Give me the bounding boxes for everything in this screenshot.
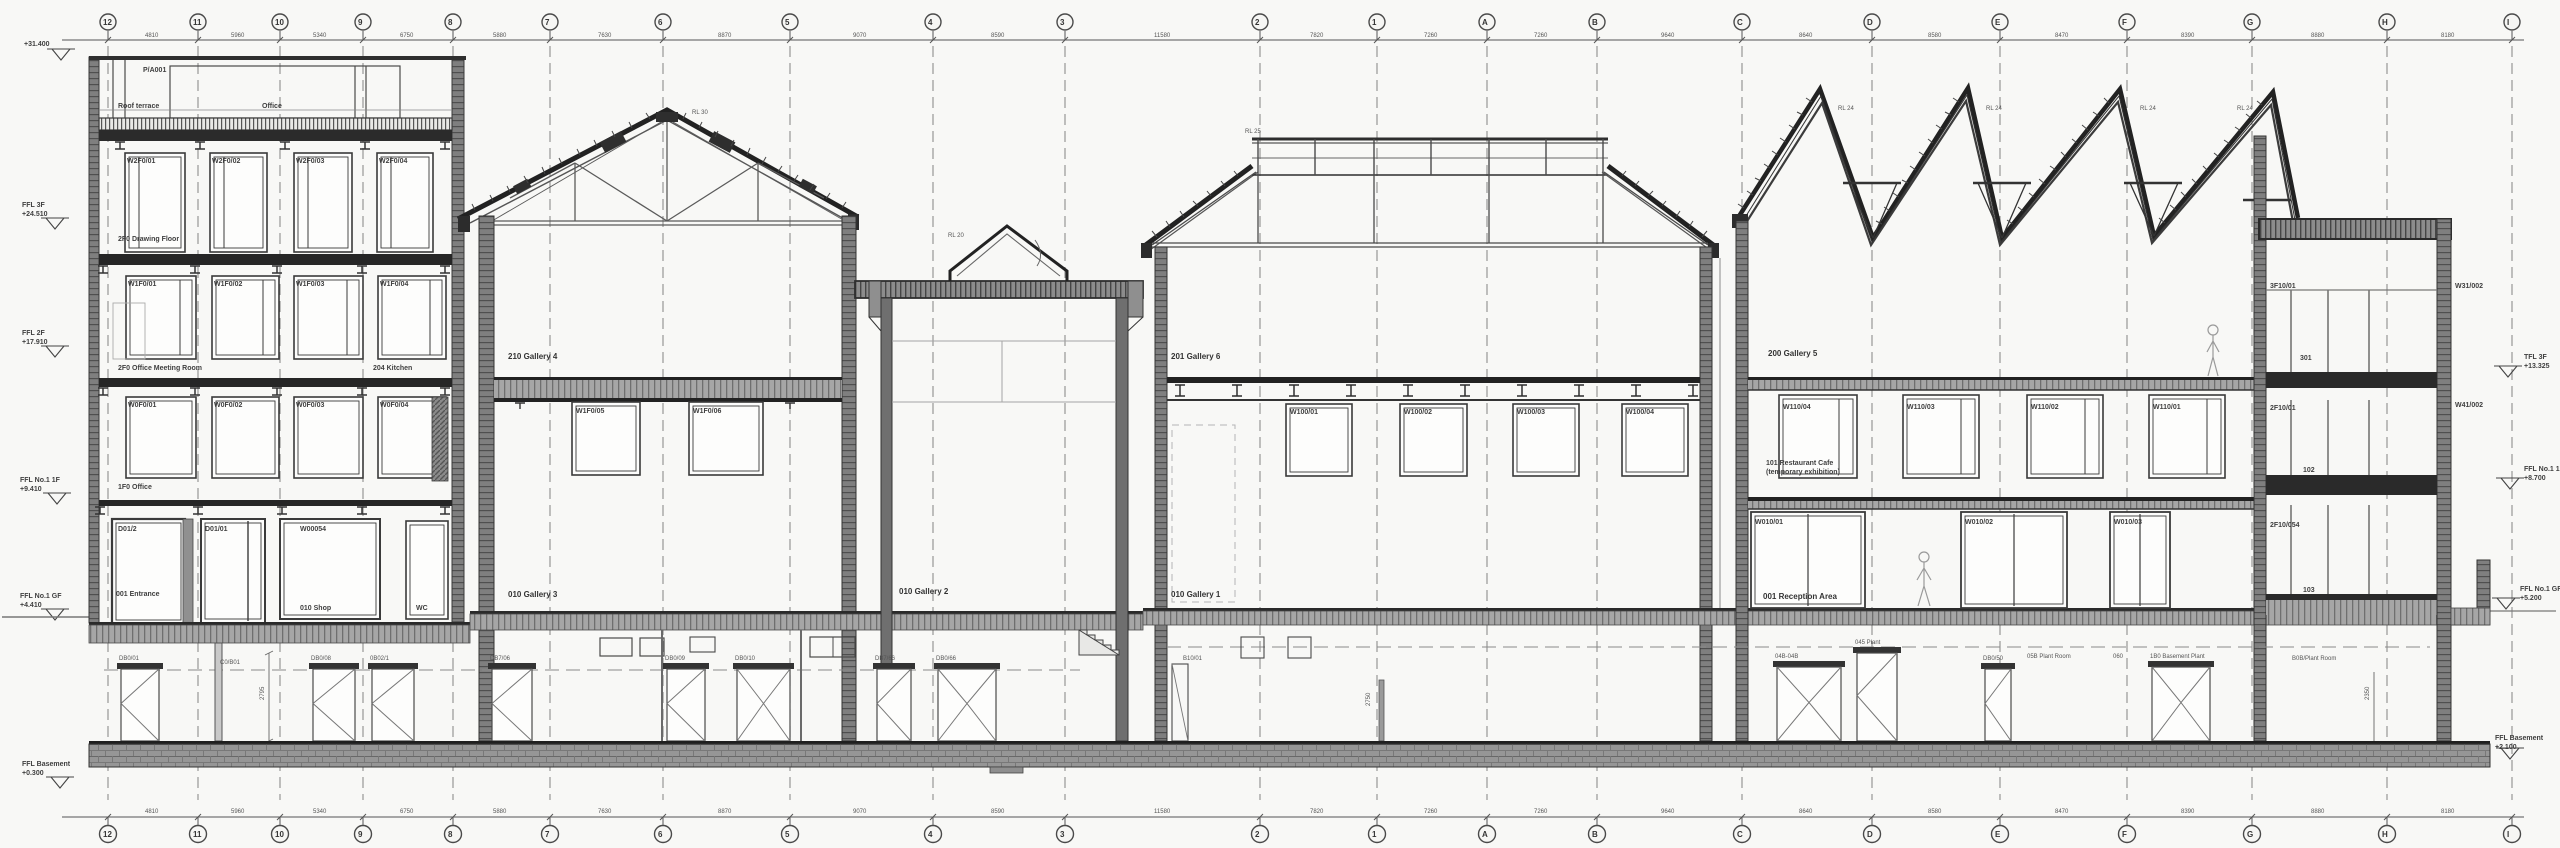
svg-text:2F10/01: 2F10/01 (2270, 405, 2296, 412)
svg-text:6750: 6750 (400, 809, 414, 815)
svg-text:FFL No.1 GF: FFL No.1 GF (2520, 586, 2560, 593)
svg-text:+8.700: +8.700 (2524, 475, 2546, 482)
svg-text:102: 102 (2303, 467, 2315, 474)
svg-text:FFL No.1 1F: FFL No.1 1F (2524, 466, 2560, 473)
svg-text:W2F0/02: W2F0/02 (212, 158, 241, 165)
svg-text:12: 12 (103, 830, 112, 839)
svg-text:WC: WC (416, 605, 428, 612)
svg-text:W00054: W00054 (300, 526, 326, 533)
svg-text:8: 8 (448, 830, 453, 839)
svg-text:301: 301 (2300, 355, 2312, 362)
svg-text:5: 5 (785, 18, 790, 27)
svg-text:04B-04B: 04B-04B (1775, 654, 1798, 660)
svg-text:W1F0/02: W1F0/02 (214, 281, 243, 288)
svg-text:W100/01: W100/01 (1290, 409, 1318, 416)
svg-text:W0F0/03: W0F0/03 (296, 402, 325, 409)
svg-text:2F0 Office Meeting Room: 2F0 Office Meeting Room (118, 365, 202, 372)
svg-text:7: 7 (545, 18, 550, 27)
svg-text:11580: 11580 (1154, 33, 1171, 39)
svg-text:060: 060 (2113, 654, 2124, 660)
svg-text:7260: 7260 (1424, 33, 1438, 39)
svg-text:12: 12 (103, 18, 112, 27)
svg-text:H: H (2382, 830, 2388, 839)
svg-text:(temporary exhibition): (temporary exhibition) (1766, 469, 1840, 476)
svg-text:I: I (2507, 830, 2509, 839)
svg-text:6750: 6750 (400, 33, 414, 39)
svg-text:201 Gallery 6: 201 Gallery 6 (1171, 352, 1221, 361)
svg-text:W010/03: W010/03 (2114, 519, 2142, 526)
svg-text:1: 1 (1372, 830, 1377, 839)
svg-text:8180: 8180 (2441, 809, 2455, 815)
svg-text:8870: 8870 (718, 809, 732, 815)
svg-text:P/A001: P/A001 (143, 67, 166, 74)
svg-text:C0/B01: C0/B01 (220, 660, 241, 666)
svg-text:B: B (1592, 830, 1598, 839)
svg-text:DB0/09: DB0/09 (665, 656, 686, 662)
svg-text:010 Gallery 1: 010 Gallery 1 (1171, 590, 1221, 599)
svg-text:I: I (2507, 18, 2509, 27)
svg-text:4810: 4810 (145, 809, 159, 815)
svg-text:9: 9 (358, 830, 363, 839)
svg-text:7630: 7630 (598, 33, 612, 39)
svg-text:7260: 7260 (1534, 809, 1548, 815)
svg-text:RL 24: RL 24 (1986, 106, 2002, 112)
svg-text:10: 10 (275, 18, 284, 27)
svg-text:D: D (1867, 830, 1873, 839)
svg-text:2350: 2350 (2365, 686, 2371, 700)
svg-text:B10/01: B10/01 (1183, 656, 1203, 662)
svg-text:8880: 8880 (2311, 33, 2325, 39)
svg-text:9: 9 (358, 18, 363, 27)
svg-text:W110/04: W110/04 (1783, 404, 1811, 411)
svg-text:101 Restaurant Cafe: 101 Restaurant Cafe (1766, 460, 1833, 467)
svg-text:FFL Basement: FFL Basement (2495, 735, 2544, 742)
svg-text:204 Kitchen: 204 Kitchen (373, 365, 412, 372)
svg-text:H: H (2382, 18, 2388, 27)
svg-text:G: G (2247, 830, 2253, 839)
svg-text:W2F0/03: W2F0/03 (296, 158, 325, 165)
svg-text:TFL 3F: TFL 3F (2524, 354, 2548, 361)
svg-text:DB0/08: DB0/08 (311, 656, 332, 662)
svg-text:7260: 7260 (1534, 33, 1548, 39)
svg-text:W100/04: W100/04 (1626, 409, 1654, 416)
svg-text:FFL 2F: FFL 2F (22, 330, 46, 337)
svg-text:8870: 8870 (718, 33, 732, 39)
svg-text:B0B/Plant Room: B0B/Plant Room (2292, 656, 2336, 662)
svg-text:RL 24: RL 24 (2237, 106, 2253, 112)
svg-text:8640: 8640 (1799, 33, 1813, 39)
svg-text:DB0/66: DB0/66 (936, 656, 957, 662)
svg-text:DB7/06: DB7/06 (490, 656, 511, 662)
svg-text:B: B (1592, 18, 1598, 27)
svg-text:DB0/50: DB0/50 (1983, 656, 2004, 662)
svg-text:RL 20: RL 20 (948, 233, 964, 239)
svg-text:FFL Basement: FFL Basement (22, 761, 71, 768)
svg-text:7820: 7820 (1310, 809, 1324, 815)
svg-text:5340: 5340 (313, 809, 327, 815)
svg-text:W110/03: W110/03 (1907, 404, 1935, 411)
svg-text:001 Entrance: 001 Entrance (116, 591, 160, 598)
svg-text:W1F0/03: W1F0/03 (296, 281, 325, 288)
svg-text:2795: 2795 (260, 686, 266, 700)
svg-text:2F0 Drawing Floor: 2F0 Drawing Floor (118, 236, 179, 243)
svg-text:0B02/1: 0B02/1 (370, 656, 390, 662)
svg-text:+9.410: +9.410 (20, 486, 42, 493)
svg-text:9070: 9070 (853, 33, 867, 39)
svg-text:200 Gallery 5: 200 Gallery 5 (1768, 349, 1818, 358)
svg-text:G: G (2247, 18, 2253, 27)
svg-text:FFL No.1 GF: FFL No.1 GF (20, 593, 62, 600)
svg-text:9640: 9640 (1661, 809, 1675, 815)
svg-text:4: 4 (928, 830, 933, 839)
svg-text:5340: 5340 (313, 33, 327, 39)
svg-text:D01/2: D01/2 (118, 526, 137, 533)
svg-text:010 Gallery 3: 010 Gallery 3 (508, 590, 558, 599)
svg-text:RL 24: RL 24 (1838, 106, 1854, 112)
svg-text:8580: 8580 (1928, 33, 1942, 39)
svg-text:C: C (1737, 830, 1743, 839)
svg-text:W31/002: W31/002 (2455, 283, 2483, 290)
svg-text:8590: 8590 (991, 809, 1005, 815)
svg-text:7820: 7820 (1310, 33, 1324, 39)
svg-text:05B Plant Room: 05B Plant Room (2027, 654, 2071, 660)
svg-text:2750: 2750 (1366, 692, 1372, 706)
svg-text:7630: 7630 (598, 809, 612, 815)
svg-text:W1F0/01: W1F0/01 (128, 281, 157, 288)
svg-text:W2F0/01: W2F0/01 (127, 158, 156, 165)
svg-text:W1F0/06: W1F0/06 (693, 408, 722, 415)
svg-text:10: 10 (275, 830, 284, 839)
svg-text:8880: 8880 (2311, 809, 2325, 815)
svg-text:W2F0/04: W2F0/04 (379, 158, 408, 165)
svg-text:W010/01: W010/01 (1755, 519, 1783, 526)
svg-text:D01/01: D01/01 (205, 526, 228, 533)
svg-text:W100/02: W100/02 (1404, 409, 1432, 416)
svg-text:7260: 7260 (1424, 809, 1438, 815)
svg-text:045 Plant: 045 Plant (1855, 640, 1881, 646)
svg-text:3F10/01: 3F10/01 (2270, 283, 2296, 290)
svg-text:1F0 Office: 1F0 Office (118, 484, 152, 491)
svg-text:A: A (1482, 18, 1488, 27)
svg-text:RL 30: RL 30 (692, 110, 708, 116)
svg-text:W110/01: W110/01 (2153, 404, 2181, 411)
svg-text:8590: 8590 (991, 33, 1005, 39)
svg-text:6: 6 (658, 18, 663, 27)
svg-text:3: 3 (1060, 18, 1065, 27)
svg-text:11580: 11580 (1154, 809, 1171, 815)
svg-text:+17.910: +17.910 (22, 339, 48, 346)
svg-text:103: 103 (2303, 587, 2315, 594)
svg-text:2: 2 (1255, 830, 1260, 839)
svg-text:+2.100: +2.100 (2495, 744, 2517, 751)
svg-text:+4.410: +4.410 (20, 602, 42, 609)
svg-text:5: 5 (785, 830, 790, 839)
svg-text:E: E (1995, 18, 2001, 27)
svg-text:11: 11 (193, 830, 202, 839)
svg-text:+24.510: +24.510 (22, 211, 48, 218)
svg-text:010 Gallery 2: 010 Gallery 2 (899, 587, 949, 596)
svg-text:Roof terrace: Roof terrace (118, 103, 159, 110)
svg-text:D: D (1867, 18, 1873, 27)
svg-text:+5.200: +5.200 (2520, 595, 2542, 602)
svg-text:4: 4 (928, 18, 933, 27)
svg-text:8180: 8180 (2441, 33, 2455, 39)
svg-text:8640: 8640 (1799, 809, 1813, 815)
svg-text:DB7/66: DB7/66 (875, 656, 896, 662)
svg-text:001 Reception Area: 001 Reception Area (1763, 592, 1838, 601)
svg-text:C: C (1737, 18, 1743, 27)
svg-text:A: A (1482, 830, 1488, 839)
svg-text:6: 6 (658, 830, 663, 839)
svg-text:2: 2 (1255, 18, 1260, 27)
svg-text:W0F0/01: W0F0/01 (128, 402, 157, 409)
svg-text:3: 3 (1060, 830, 1065, 839)
svg-text:5880: 5880 (493, 33, 507, 39)
svg-text:W100/03: W100/03 (1517, 409, 1545, 416)
svg-text:9640: 9640 (1661, 33, 1675, 39)
svg-text:8390: 8390 (2181, 33, 2195, 39)
svg-text:5880: 5880 (493, 809, 507, 815)
svg-text:7: 7 (545, 830, 550, 839)
svg-text:DB0/01: DB0/01 (119, 656, 140, 662)
svg-text:W41/002: W41/002 (2455, 402, 2483, 409)
svg-text:1B0 Basement Plant: 1B0 Basement Plant (2150, 654, 2205, 660)
svg-text:+13.325: +13.325 (2524, 363, 2550, 370)
svg-text:RL 25: RL 25 (1245, 129, 1261, 135)
svg-text:E: E (1995, 830, 2001, 839)
svg-text:W110/02: W110/02 (2031, 404, 2059, 411)
svg-text:5960: 5960 (231, 33, 245, 39)
svg-text:W0F0/02: W0F0/02 (214, 402, 243, 409)
svg-text:+0.300: +0.300 (22, 770, 44, 777)
svg-text:9070: 9070 (853, 809, 867, 815)
svg-text:W010/02: W010/02 (1965, 519, 1993, 526)
svg-text:5960: 5960 (231, 809, 245, 815)
svg-text:W1F0/04: W1F0/04 (380, 281, 409, 288)
svg-text:W1F0/05: W1F0/05 (576, 408, 605, 415)
svg-text:8470: 8470 (2055, 33, 2069, 39)
svg-text:210 Gallery 4: 210 Gallery 4 (508, 352, 558, 361)
svg-text:FFL 3F: FFL 3F (22, 202, 46, 209)
svg-text:RL 24: RL 24 (2140, 106, 2156, 112)
svg-text:2F10/054: 2F10/054 (2270, 522, 2300, 529)
svg-text:+31.400: +31.400 (24, 41, 50, 48)
svg-text:8390: 8390 (2181, 809, 2195, 815)
svg-text:11: 11 (193, 18, 202, 27)
svg-text:F: F (2122, 830, 2127, 839)
svg-text:DB0/10: DB0/10 (735, 656, 756, 662)
svg-text:8470: 8470 (2055, 809, 2069, 815)
svg-text:8580: 8580 (1928, 809, 1942, 815)
svg-text:F: F (2122, 18, 2127, 27)
svg-text:W0F0/04: W0F0/04 (380, 402, 409, 409)
svg-text:4810: 4810 (145, 33, 159, 39)
svg-text:010 Shop: 010 Shop (300, 605, 331, 612)
svg-text:8: 8 (448, 18, 453, 27)
svg-text:Office: Office (262, 103, 282, 110)
svg-text:1: 1 (1372, 18, 1377, 27)
svg-text:FFL No.1 1F: FFL No.1 1F (20, 477, 61, 484)
